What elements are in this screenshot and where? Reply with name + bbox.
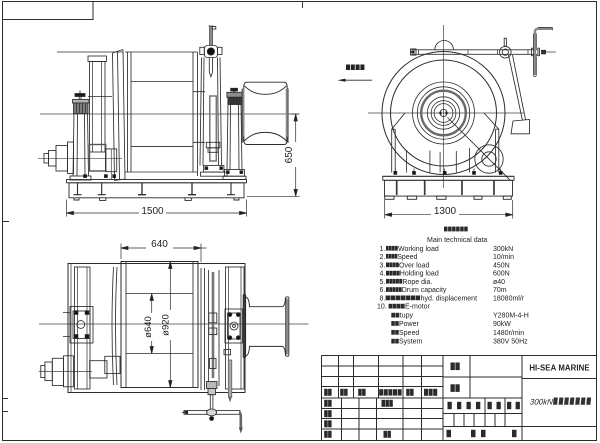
svg-text:300kN: 300kN bbox=[529, 398, 553, 407]
svg-text:1480r/min: 1480r/min bbox=[493, 330, 524, 337]
svg-text:Speed: Speed bbox=[397, 254, 417, 261]
svg-text:8.: 8. bbox=[380, 295, 386, 302]
svg-text:ø920: ø920 bbox=[161, 314, 172, 336]
svg-text:Holding load: Holding load bbox=[400, 271, 439, 278]
svg-text:4.: 4. bbox=[380, 271, 386, 278]
svg-text:3.: 3. bbox=[380, 262, 386, 269]
svg-text:System: System bbox=[399, 339, 423, 346]
svg-text:600N: 600N bbox=[493, 271, 510, 278]
svg-text:70m: 70m bbox=[493, 287, 507, 294]
svg-text:650: 650 bbox=[284, 146, 295, 163]
svg-text:Working load: Working load bbox=[398, 246, 439, 253]
svg-text:Drum capacity: Drum capacity bbox=[402, 287, 447, 294]
svg-text:10/min: 10/min bbox=[493, 254, 514, 261]
svg-text:Main technical data: Main technical data bbox=[427, 237, 487, 244]
svg-text:Y280M-4-H: Y280M-4-H bbox=[493, 313, 529, 320]
svg-text:E-motor: E-motor bbox=[405, 304, 431, 311]
svg-text:tupy: tupy bbox=[400, 313, 414, 320]
svg-text:18080ml/r: 18080ml/r bbox=[493, 295, 525, 302]
svg-text:6.: 6. bbox=[380, 287, 386, 294]
svg-text:1500: 1500 bbox=[141, 206, 164, 217]
svg-text:Speed: Speed bbox=[399, 330, 419, 337]
svg-text:1.: 1. bbox=[380, 246, 386, 253]
svg-text:300kN: 300kN bbox=[493, 246, 513, 253]
svg-text:640: 640 bbox=[151, 239, 168, 250]
svg-text:2.: 2. bbox=[380, 254, 386, 261]
svg-text:hyd. displacement: hyd. displacement bbox=[421, 295, 477, 302]
svg-text:ø40: ø40 bbox=[493, 279, 505, 286]
svg-text:450N: 450N bbox=[493, 262, 510, 269]
svg-text:90kW: 90kW bbox=[493, 321, 511, 328]
svg-text:ø640: ø640 bbox=[143, 316, 154, 338]
svg-text:Over load: Over load bbox=[399, 262, 429, 269]
svg-text:380V 50Hz: 380V 50Hz bbox=[493, 339, 528, 346]
svg-text:10.: 10. bbox=[377, 304, 387, 311]
svg-text:Rope dia.: Rope dia. bbox=[402, 279, 432, 286]
svg-text:1300: 1300 bbox=[434, 206, 457, 217]
svg-text:5.: 5. bbox=[380, 279, 386, 286]
svg-text:HI-SEA MARINE: HI-SEA MARINE bbox=[529, 363, 589, 372]
svg-text:Power: Power bbox=[399, 321, 420, 328]
